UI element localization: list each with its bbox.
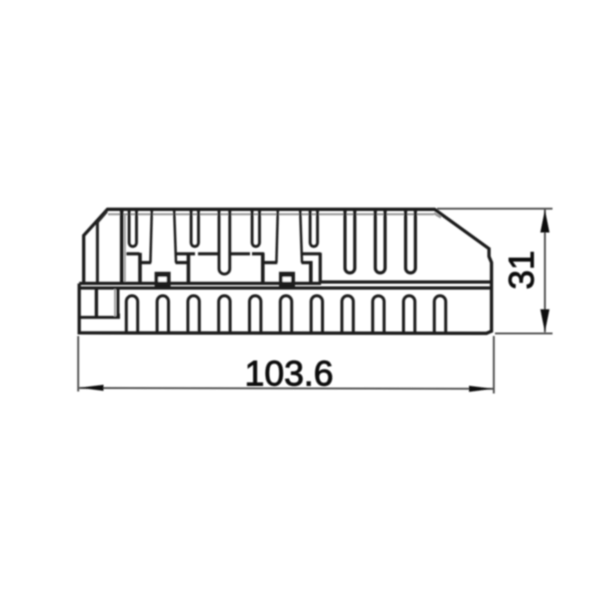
- svg-text:31: 31: [503, 251, 542, 290]
- svg-text:103.6: 103.6: [245, 354, 334, 394]
